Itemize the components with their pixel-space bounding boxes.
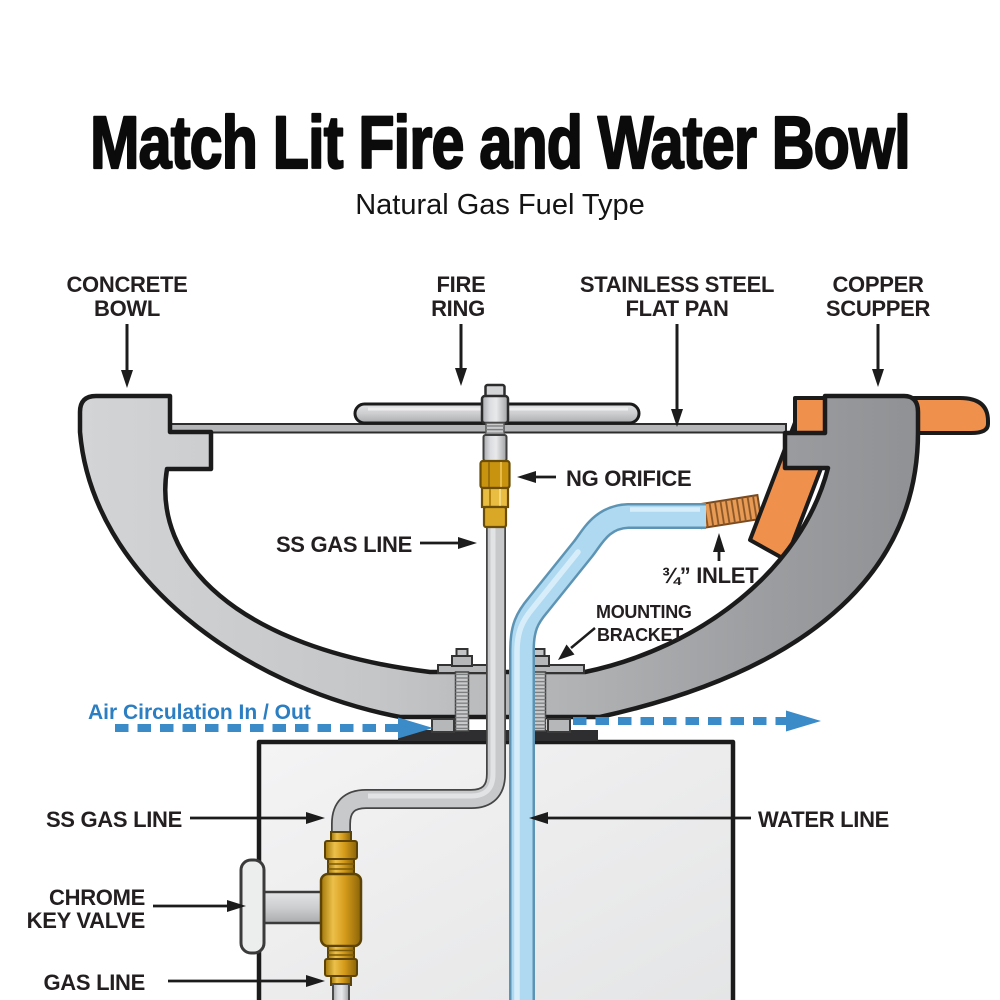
copper-scupper-label2: SCUPPER [826, 296, 931, 321]
bracket-foot-right [548, 719, 570, 732]
flat-pan-label: STAINLESS STEEL [580, 272, 774, 297]
fire-ring-hub [482, 396, 508, 423]
chrome-key-valve-label: CHROME [49, 885, 145, 910]
fire-ring-arrow [455, 324, 467, 386]
mounting-bracket-arrow [558, 628, 595, 660]
gas-line-bottom-tube [333, 984, 349, 1000]
diagram-page: Match Lit Fire and Water Bowl Natural Ga… [0, 0, 1000, 1000]
valve-body [321, 874, 361, 946]
fire-ring-label2: RING [431, 296, 485, 321]
page-title: Match Lit Fire and Water Bowl [90, 102, 910, 185]
chrome-valve-arrow [153, 900, 246, 912]
copper-scupper-label: COPPER [832, 272, 924, 297]
inlet-arrow [713, 533, 725, 561]
page-subtitle: Natural Gas Fuel Type [355, 189, 645, 221]
mounting-bracket-label2: BRACKET [597, 625, 683, 645]
fire-ring-label: FIRE [437, 272, 486, 297]
ss-gas-upper-arrow [420, 537, 477, 549]
ng-orifice-arrow [517, 471, 556, 483]
flat-pan-label2: FLAT PAN [625, 296, 728, 321]
chrome-key-valve-label2: KEY VALVE [27, 908, 145, 933]
concrete-bowl-label: CONCRETE [66, 272, 187, 297]
inlet-label: ¾” INLET [662, 563, 759, 588]
ng-orifice-fitting [481, 423, 510, 527]
ng-orifice-label: NG ORIFICE [566, 466, 691, 491]
concrete-bowl-label2: BOWL [94, 296, 160, 321]
water-line-label: WATER LINE [758, 807, 889, 832]
ss-gas-line-lower-label: SS GAS LINE [46, 807, 182, 832]
bracket-foot-left [432, 719, 454, 732]
concrete-bowl-arrow [121, 324, 133, 388]
fire-water-bowl-diagram: Match Lit Fire and Water Bowl Natural Ga… [0, 0, 1000, 1000]
stainless-flat-pan [166, 424, 786, 433]
inlet-threads [698, 495, 761, 528]
ss-gas-line-upper-label: SS GAS LINE [276, 532, 412, 557]
air-circulation-label: Air Circulation In / Out [88, 701, 311, 724]
copper-scupper-arrow [872, 324, 884, 387]
flat-pan-arrow [671, 324, 683, 427]
mounting-bracket-label: MOUNTING [596, 602, 692, 622]
fire-ring [355, 385, 639, 423]
gas-line-label: GAS LINE [44, 970, 146, 995]
key-valve-escutcheon [241, 860, 264, 953]
